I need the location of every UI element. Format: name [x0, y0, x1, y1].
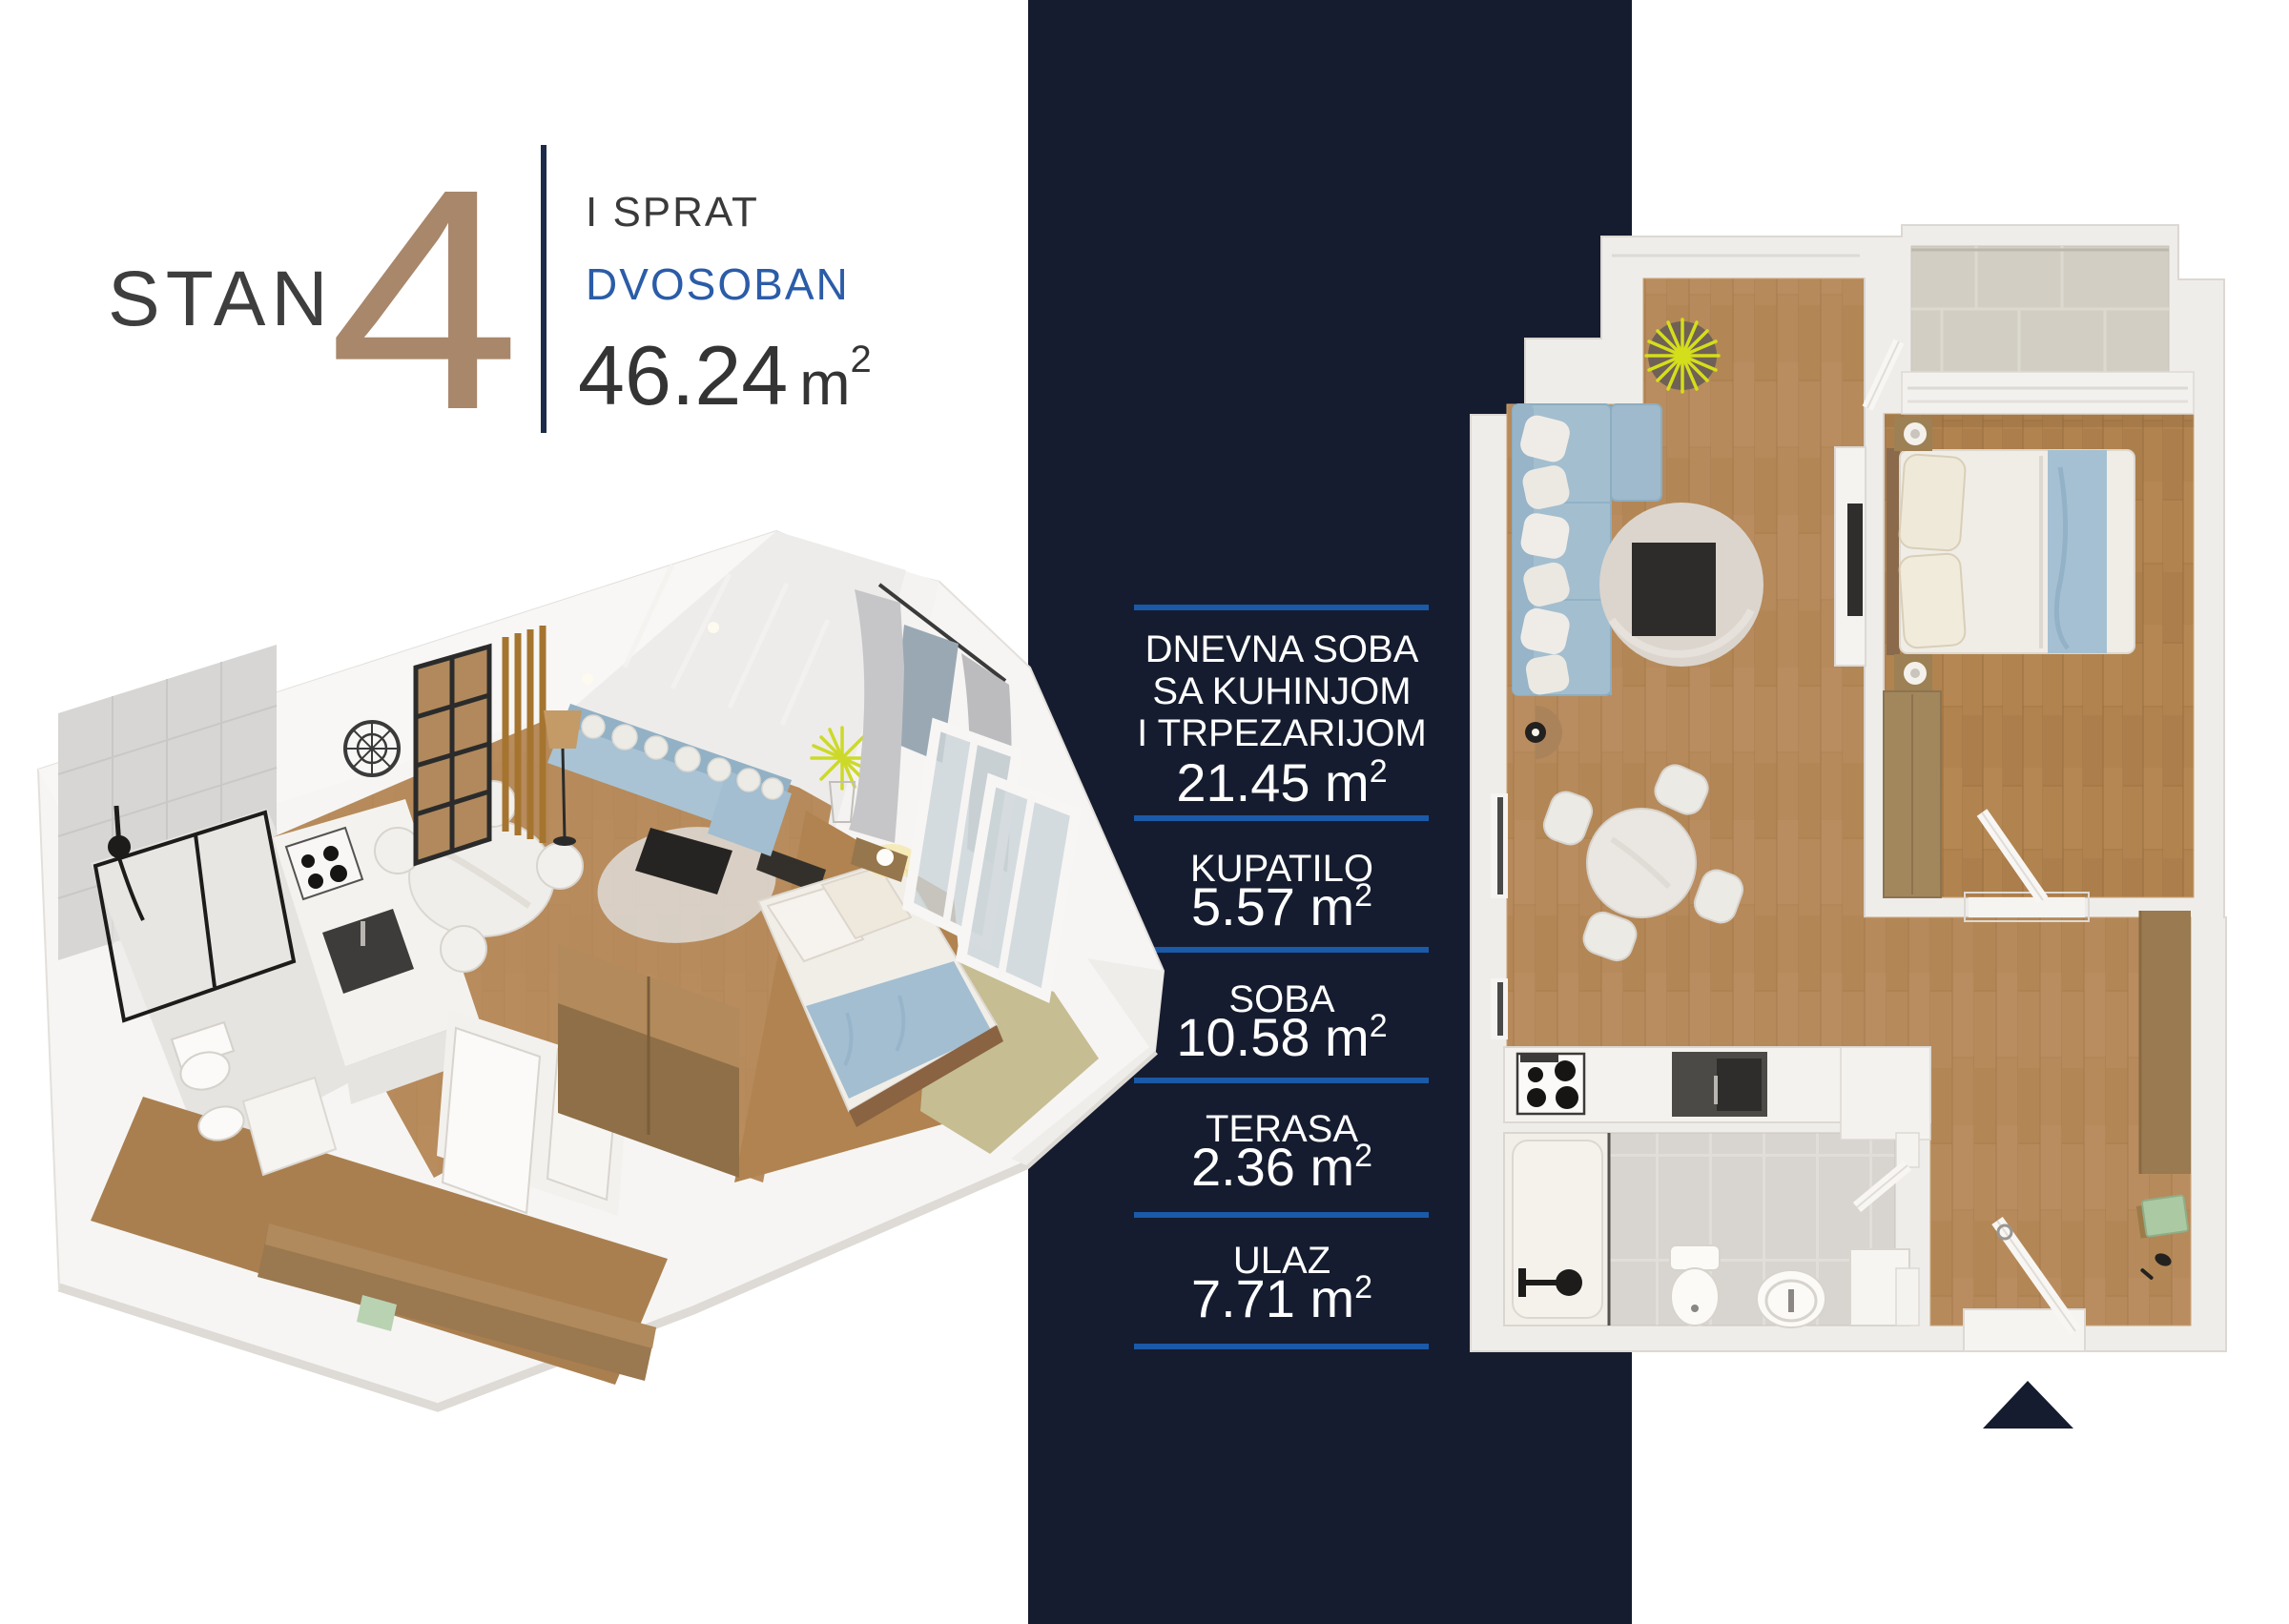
svg-text:DNEVNA SOBA: DNEVNA SOBA: [1145, 628, 1419, 670]
svg-text:7.71 m2: 7.71 m2: [1191, 1268, 1372, 1328]
svg-text:10.58 m2: 10.58 m2: [1176, 1007, 1387, 1067]
svg-text:I TRPEZARIJOM: I TRPEZARIJOM: [1137, 712, 1427, 754]
svg-text:4: 4: [328, 123, 521, 475]
svg-text:2.36 m2: 2.36 m2: [1191, 1137, 1372, 1197]
svg-text:STAN: STAN: [108, 256, 334, 342]
svg-text:SA KUHINJOM: SA KUHINJOM: [1152, 670, 1411, 712]
svg-text:DVOSOBAN: DVOSOBAN: [586, 259, 850, 309]
svg-text:21.45 m2: 21.45 m2: [1176, 752, 1387, 812]
svg-text:5.57 m2: 5.57 m2: [1191, 876, 1372, 936]
svg-text:I SPRAT: I SPRAT: [586, 189, 759, 236]
